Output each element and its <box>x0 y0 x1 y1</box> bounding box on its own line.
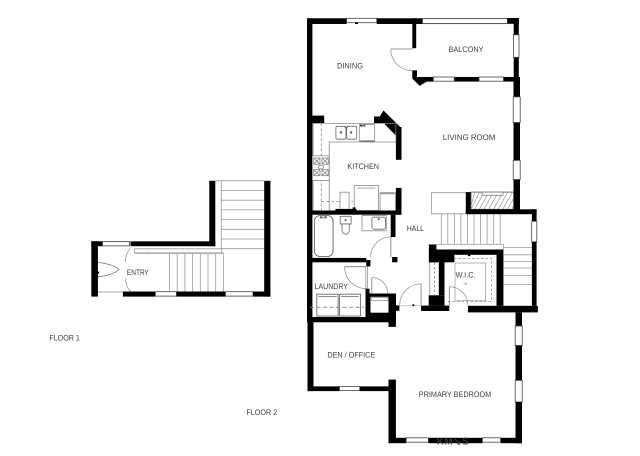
svg-text:W.I.C.: W.I.C. <box>456 270 476 279</box>
svg-text:HALL: HALL <box>407 224 424 233</box>
svg-text:DEN / OFFICE: DEN / OFFICE <box>327 351 375 360</box>
svg-text:KITCHEN: KITCHEN <box>347 162 379 171</box>
svg-text:PRIMARY BEDROOM: PRIMARY BEDROOM <box>419 390 492 399</box>
svg-text:LIVING ROOM: LIVING ROOM <box>443 133 496 142</box>
svg-text:LAUNDRY: LAUNDRY <box>315 282 349 291</box>
svg-text:FLOOR 2: FLOOR 2 <box>246 408 277 417</box>
svg-text:ENTRY: ENTRY <box>127 268 150 277</box>
svg-text:FLOOR 1: FLOOR 1 <box>49 333 80 342</box>
svg-text:DINING: DINING <box>337 62 363 71</box>
svg-text:KM↘S: KM↘S <box>437 437 470 448</box>
svg-text:BALCONY: BALCONY <box>449 45 485 54</box>
